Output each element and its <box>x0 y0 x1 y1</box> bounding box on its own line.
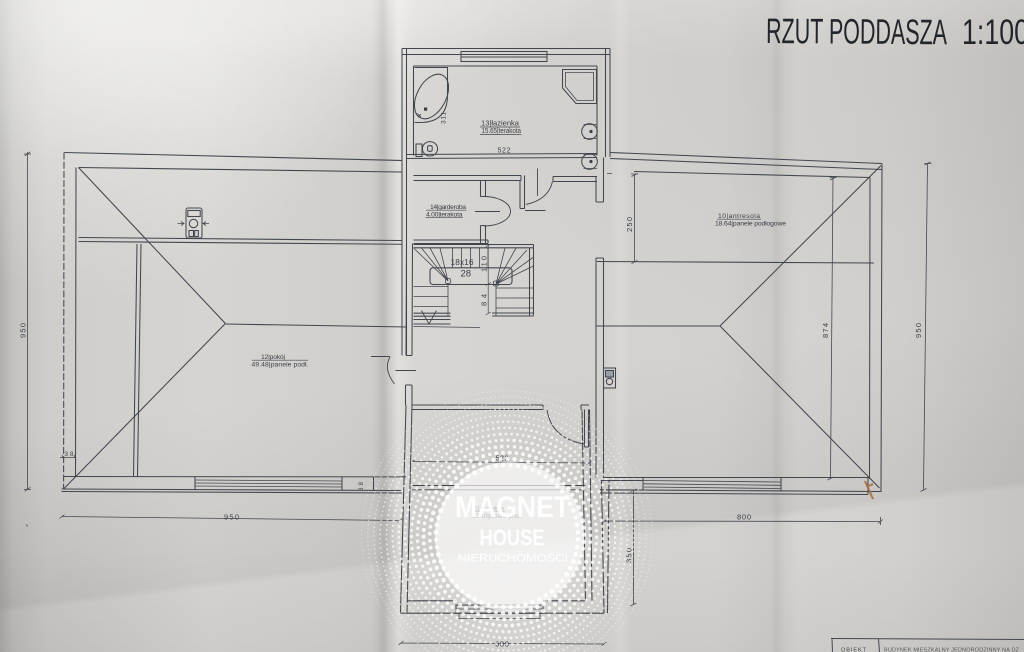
svg-text:950: 950 <box>914 323 923 338</box>
svg-text:NIERUCHOMOŚCI: NIERUCHOMOŚCI <box>458 552 569 565</box>
svg-text:RZUT PODDASZA: RZUT PODDASZA <box>766 11 947 52</box>
svg-text:38: 38 <box>358 481 365 491</box>
svg-text:18x16: 18x16 <box>451 258 474 267</box>
svg-text:28: 28 <box>461 269 472 280</box>
svg-text:38: 38 <box>65 451 75 458</box>
svg-text:84: 84 <box>480 294 489 306</box>
svg-text:MAGNET: MAGNET <box>455 491 570 524</box>
svg-text:800: 800 <box>737 513 751 522</box>
svg-text:1:100: 1:100 <box>962 12 1024 52</box>
svg-text:15.65|terakota: 15.65|terakota <box>482 128 522 135</box>
svg-text:950: 950 <box>224 513 239 522</box>
svg-text:49.48|panele podł.: 49.48|panele podł. <box>252 362 309 369</box>
svg-text:13|łazienka: 13|łazienka <box>481 121 519 128</box>
svg-text:950: 950 <box>19 323 28 338</box>
svg-text:BUDYNEK MIESZKALNY JEDNORODZIN: BUDYNEK MIESZKALNY JEDNORODZINNY NA DZ <box>884 648 1020 652</box>
svg-text:311: 311 <box>441 112 448 124</box>
svg-text:522: 522 <box>498 148 511 155</box>
svg-text:250: 250 <box>625 217 634 232</box>
svg-text:110: 110 <box>480 256 489 272</box>
svg-text:874: 874 <box>821 323 830 338</box>
svg-text:OBIEKT: OBIEKT <box>841 648 867 652</box>
svg-text:18.64|panele podłogowe: 18.64|panele podłogowe <box>715 221 786 228</box>
svg-text:HOUSE: HOUSE <box>480 525 545 551</box>
